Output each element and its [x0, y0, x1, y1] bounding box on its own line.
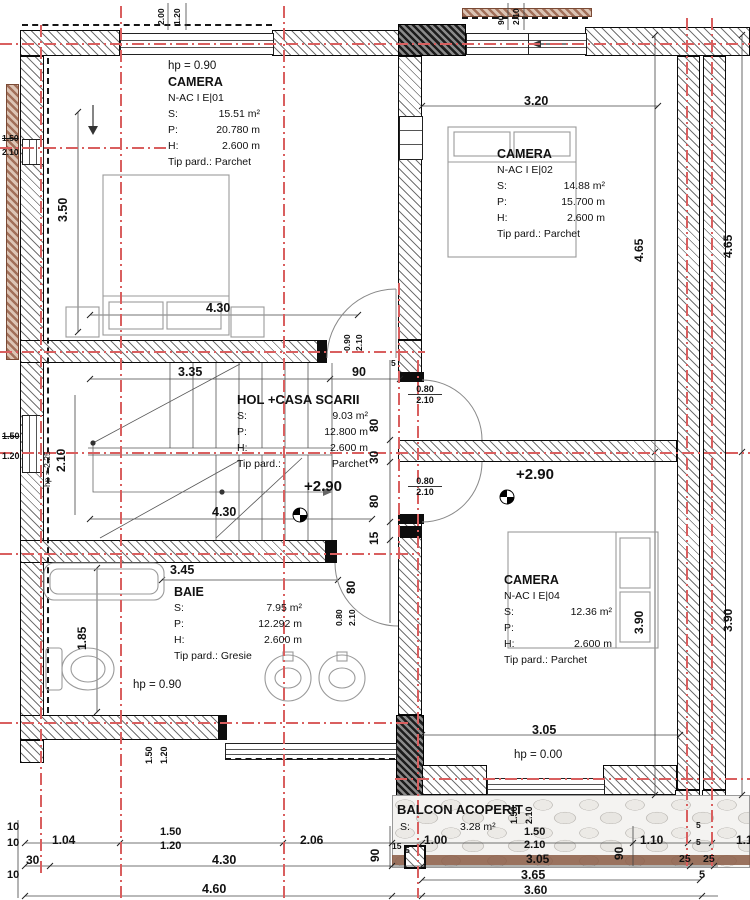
axis-line: [0, 43, 750, 45]
dim-label: 1.04: [52, 834, 75, 846]
hp-label: hp = 0.90: [168, 58, 260, 74]
dim-label: 25: [703, 853, 715, 865]
dim-label: 3.90: [722, 609, 734, 632]
dim-label: 3.90: [633, 611, 645, 634]
axis-line: [40, 25, 42, 873]
dim-label: 1.50: [143, 746, 155, 764]
dim-label: 2.10: [512, 8, 521, 25]
hp-label: hp = 0.00: [514, 749, 562, 761]
door-size-label: 0.80 2.10: [408, 384, 442, 405]
dim-label: 5: [405, 846, 410, 855]
room-stat-row: H:2.600 m: [237, 440, 368, 456]
stat-value: 2.600 m: [567, 210, 605, 226]
room-name: CAMERA: [504, 572, 612, 588]
dim-label: 1.20: [158, 746, 170, 764]
room-stat-row: P:20.780 m: [168, 122, 260, 138]
stat-key: S:: [497, 178, 507, 194]
dim-label: 80: [368, 419, 380, 432]
axis-line: [0, 553, 420, 555]
dim-label: 15: [392, 842, 401, 851]
stat-value: 12.36 m²: [571, 604, 612, 620]
dim-label: 90: [613, 847, 625, 860]
room-code: N-AC I E|02: [497, 162, 605, 178]
dim-label: 10: [7, 837, 19, 849]
dim-label: 2.00: [157, 8, 166, 25]
stat-key: P:: [174, 616, 184, 632]
stat-key: S:: [400, 821, 410, 833]
door-size-label: 0.80 2.10: [408, 476, 442, 497]
axis-line: [398, 283, 400, 560]
entry-arrow: [88, 40, 566, 135]
dim-label: 25: [679, 853, 691, 865]
dim-label: 4.65: [722, 235, 734, 258]
dim-label: 4.30: [212, 506, 236, 518]
dim-label: 90: [352, 366, 366, 378]
stat-key: P:: [168, 122, 178, 138]
dim-label: 2.10: [55, 449, 67, 472]
stat-key: Tip pard.:: [237, 456, 281, 472]
stat-key: S:: [168, 106, 178, 122]
dim-label: 1.50: [2, 432, 20, 441]
room-info-hol: HOL +CASA SCARII S:9.03 m² P:12.800 m H:…: [237, 392, 368, 472]
room-name: BAIE: [174, 584, 302, 600]
dim-label: 15: [368, 532, 380, 545]
room-stat-row: P:12.292 m: [174, 616, 302, 632]
dim-label: 90: [369, 849, 381, 862]
room-stat-row: H:2.600 m: [174, 632, 302, 648]
dim-label: 0.80: [408, 476, 442, 487]
room-stat-row: S:15.51 m²: [168, 106, 260, 122]
dim-label: 1.50: [2, 134, 19, 143]
stat-key: P:: [504, 620, 514, 636]
nightstand: [231, 307, 264, 337]
dim-label: 3.60: [524, 884, 547, 896]
room-code: N-AC I E|01: [168, 90, 260, 106]
sink: [319, 655, 365, 701]
dim-label: 2.10: [416, 487, 434, 497]
dim-label: 5: [391, 359, 396, 368]
stat-key: P:: [237, 424, 247, 440]
stat-value: 20.780 m: [216, 122, 260, 138]
dim-label: 2.10: [355, 334, 364, 351]
dim-label: 10: [7, 869, 19, 881]
axis-line: [0, 351, 425, 353]
floor-plan-canvas: hp = 0.90 CAMERA N-AC I E|01 S:15.51 m² …: [0, 0, 750, 900]
dim-label: 0.80: [335, 609, 344, 626]
dim-label: 90: [497, 16, 506, 25]
room-info-camera4: CAMERA N-AC I E|04 S:12.36 m² P:14.220 m…: [504, 572, 612, 668]
room-name: HOL +CASA SCARII: [237, 392, 368, 408]
stat-key: P:: [497, 194, 507, 210]
room-name: CAMERA: [497, 146, 605, 162]
room-floor: Tip pard.: Parchet: [497, 226, 605, 242]
stat-value: 7.95 m²: [266, 600, 302, 616]
room-floor: Tip pard.: Parchet: [504, 652, 612, 668]
room-info-camera2: CAMERA N-AC I E|02 S:14.88 m² P:15.700 m…: [497, 146, 605, 242]
room-stat-row: H:2.600 m: [497, 210, 605, 226]
dim-label: 2.10: [2, 148, 19, 157]
stat-value: 2.600 m: [264, 632, 302, 648]
room-stat-row: P:15.700 m: [497, 194, 605, 210]
room-stat-row: S:9.03 m²: [237, 408, 368, 424]
dim-label: 0.90: [343, 334, 352, 351]
dim-label: 4.60: [202, 883, 226, 895]
dim-label: 30: [368, 451, 380, 464]
stat-value: 12.800 m: [324, 424, 368, 440]
stat-key: S:: [174, 600, 184, 616]
room-stat-row: S:12.36 m²: [504, 604, 612, 620]
dim-label: 4.65: [633, 239, 645, 262]
dim-label: 3.05: [532, 724, 556, 736]
stat-key: H:: [497, 210, 508, 226]
axis-line: [395, 778, 750, 780]
dim-label: 1.50: [508, 806, 520, 824]
stat-key: H:: [168, 138, 179, 154]
room-code: N-AC I E|04: [504, 588, 612, 604]
stat-value: Parchet: [332, 456, 368, 472]
room-info-camera1: hp = 0.90 CAMERA N-AC I E|01 S:15.51 m² …: [168, 58, 260, 170]
room-name-balcon: BALCON ACOPERIT: [397, 804, 523, 816]
stat-key: H:: [174, 632, 185, 648]
stat-key: H:: [237, 440, 248, 456]
dim-label: 3.50: [57, 198, 69, 222]
axis-line: [686, 18, 688, 870]
dim-label: 1.50: [160, 826, 181, 838]
stat-value: 15.51 m²: [219, 106, 260, 122]
stat-value: 9.03 m²: [332, 408, 368, 424]
room-name: CAMERA: [168, 74, 260, 90]
dim-label: 5: [696, 821, 701, 830]
stat-key: S:: [237, 408, 247, 424]
dimension-ticks: [22, 32, 745, 899]
dim-label: 10: [7, 821, 19, 833]
dim-label: 5: [699, 869, 705, 881]
room-stat-row: Tip pard.:Parchet: [237, 456, 368, 472]
dim-label: 1.20: [2, 452, 20, 461]
stat-value: 2.600 m: [222, 138, 260, 154]
room-stat-row: S:7.95 m²: [174, 600, 302, 616]
hp-label-baie: hp = 0.90: [133, 679, 181, 691]
axis-line: [0, 147, 170, 149]
room-floor: Tip pard.: Parchet: [168, 154, 260, 170]
dim-label: 1.20: [160, 840, 181, 852]
dim-label: 30: [26, 854, 39, 866]
level-marker-camera4: +2.90: [516, 469, 554, 481]
axis-line: [711, 18, 713, 870]
room-stat-row: S:14.88 m²: [497, 178, 605, 194]
dim-label: 2.10: [348, 609, 357, 626]
axis-line: [417, 360, 419, 898]
dim-label: 1.85: [76, 627, 88, 650]
axis-line: [0, 722, 410, 724]
dimension-lines: [18, 3, 750, 898]
stat-value: 12.292 m: [258, 616, 302, 632]
dim-label: 2.10: [416, 395, 434, 405]
dim-label: 2.10: [524, 839, 545, 851]
room-stat-row: P:12.800 m: [237, 424, 368, 440]
dim-label: 0.80: [408, 384, 442, 395]
dim-label: 3.45: [170, 564, 194, 576]
stat-value: 14.88 m²: [564, 178, 605, 194]
room-info-baie: BAIE S:7.95 m² P:12.292 m H:2.600 m Tip …: [174, 584, 302, 664]
stat-value: 2.600 m: [330, 440, 368, 456]
dim-label: 1.20: [173, 8, 182, 25]
room-floor: Tip pard.: Gresie: [174, 648, 302, 664]
dim-label: 4.30: [206, 302, 230, 314]
stat-value: 2.600 m: [574, 636, 612, 652]
room-stat-row: H:2.600 m: [168, 138, 260, 154]
dim-label: 80: [345, 581, 357, 594]
dim-label: 1.00: [424, 834, 447, 846]
dim-label: 3.20: [524, 95, 548, 107]
stat-value: 15.700 m: [561, 194, 605, 210]
dim-label: hp = 2.25: [43, 451, 52, 487]
dim-label: 80: [368, 495, 380, 508]
stat-key: S:: [504, 604, 514, 620]
room-stat-row: P:14.220 m: [504, 620, 612, 636]
dim-label: 1.10: [640, 834, 663, 846]
dim-label: 4.30: [212, 854, 236, 866]
stat-value: 3.28 m²: [460, 821, 496, 833]
nightstand: [66, 307, 99, 337]
room-stat-row: H:2.600 m: [504, 636, 612, 652]
dim-label: 3.65: [521, 869, 545, 881]
stat-key: H:: [504, 636, 515, 652]
dim-label: 2.06: [300, 834, 323, 846]
dim-label: 3.35: [178, 366, 202, 378]
dim-label: 1.1: [736, 834, 750, 846]
dim-label: 3.05: [526, 853, 549, 865]
level-marker-hol: +2.90: [304, 481, 342, 493]
dim-label: 1.50: [524, 826, 545, 838]
dim-label: 5: [696, 838, 701, 847]
dim-label: 2.10: [523, 806, 535, 824]
toilet: [46, 648, 62, 690]
